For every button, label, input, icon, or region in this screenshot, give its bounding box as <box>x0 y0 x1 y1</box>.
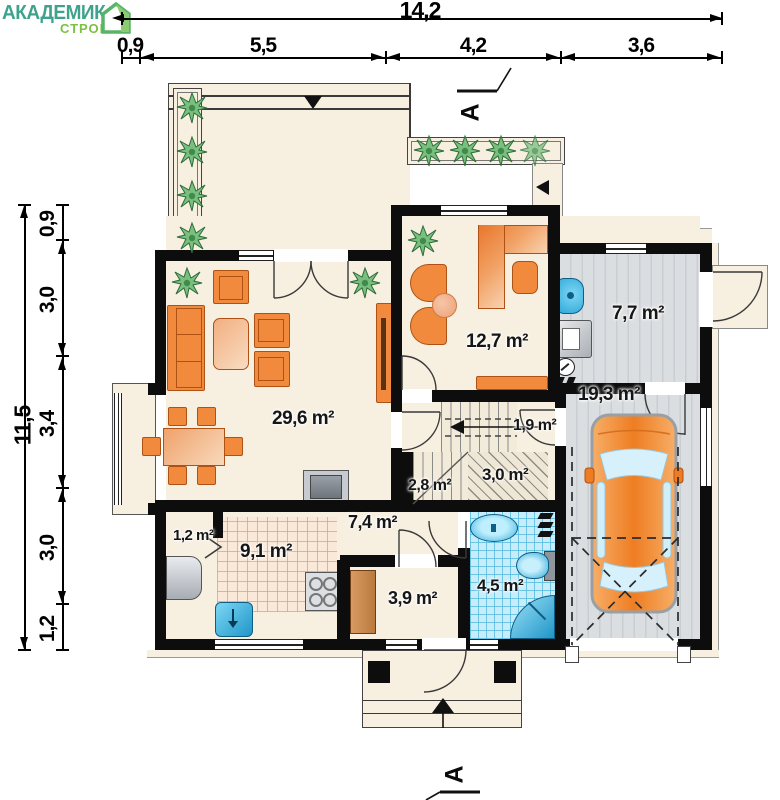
section-marker-top: A <box>457 103 486 121</box>
section-marker-bottom: A <box>441 765 470 783</box>
plan-overlay <box>0 0 780 800</box>
room-label-kitchen: 9,1 m² <box>240 541 292 563</box>
room-label-stairs: 2,8 m² <box>408 477 451 495</box>
room-label-hall: 3,0 m² <box>482 465 528 485</box>
room-label-vestibule: 3,9 m² <box>388 588 437 609</box>
room-label-utility: 7,7 m² <box>612 303 664 325</box>
room-label-bathroom: 4,5 m² <box>477 576 523 596</box>
room-label-pantry: 1,2 m² <box>173 527 213 544</box>
room-label-hallway: 7,4 m² <box>348 512 397 533</box>
floor-plan: АКАДЕМИК СТРОЙ 14,2 0,9 5,5 4,2 3,6 11,5 <box>0 0 780 800</box>
room-label-living: 29,6 m² <box>272 408 334 430</box>
room-label-office: 12,7 m² <box>466 331 528 353</box>
room-label-corridor: 1,9 m² <box>513 417 556 435</box>
room-label-garage: 19,3 m² <box>578 384 640 406</box>
